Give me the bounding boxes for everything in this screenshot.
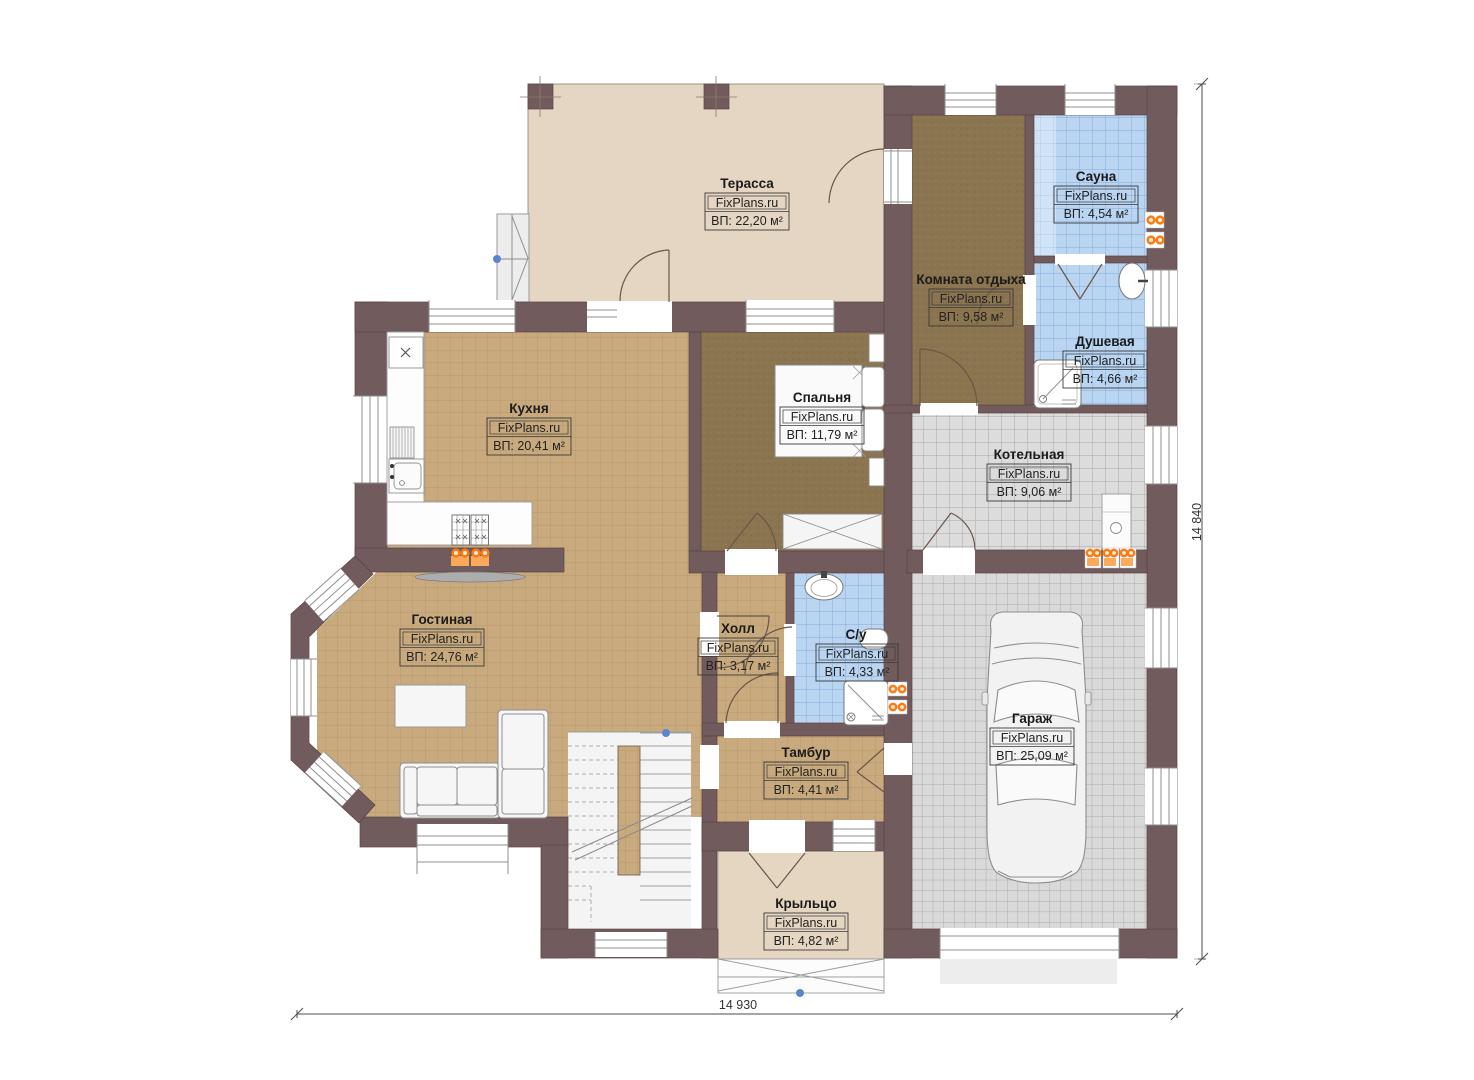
svg-text:FixPlans.ru: FixPlans.ru: [998, 467, 1061, 481]
svg-text:ВП: 11,79 м²: ВП: 11,79 м²: [787, 428, 858, 442]
svg-text:ВП: 4,82 м²: ВП: 4,82 м²: [774, 934, 839, 948]
svg-text:FixPlans.ru: FixPlans.ru: [791, 410, 854, 424]
svg-text:ВП: 3,17 м²: ВП: 3,17 м²: [706, 659, 771, 673]
svg-text:FixPlans.ru: FixPlans.ru: [1065, 189, 1128, 203]
svg-text:Терасса: Терасса: [720, 176, 774, 191]
svg-text:FixPlans.ru: FixPlans.ru: [716, 196, 779, 210]
svg-text:ВП: 4,66 м²: ВП: 4,66 м²: [1073, 372, 1138, 386]
svg-text:ВП: 9,06 м²: ВП: 9,06 м²: [997, 485, 1062, 499]
svg-text:FixPlans.ru: FixPlans.ru: [775, 765, 838, 779]
svg-text:FixPlans.ru: FixPlans.ru: [411, 632, 474, 646]
svg-text:С/у: С/у: [845, 627, 867, 642]
svg-text:ВП: 25,09 м²: ВП: 25,09 м²: [996, 749, 1068, 763]
svg-text:Спальня: Спальня: [793, 390, 851, 405]
svg-text:ВП: 9,58 м²: ВП: 9,58 м²: [939, 310, 1004, 324]
svg-text:Гостиная: Гостиная: [411, 612, 472, 627]
svg-text:ВП: 4,33 м²: ВП: 4,33 м²: [825, 665, 890, 679]
svg-text:FixPlans.ru: FixPlans.ru: [498, 421, 561, 435]
svg-text:Тамбур: Тамбур: [782, 745, 831, 760]
svg-text:Котельная: Котельная: [994, 447, 1065, 462]
svg-text:14 840: 14 840: [1190, 503, 1204, 541]
svg-text:Душевая: Душевая: [1075, 334, 1135, 349]
svg-text:Сауна: Сауна: [1076, 169, 1117, 184]
svg-text:Крыльцо: Крыльцо: [775, 896, 836, 911]
svg-text:Холл: Холл: [721, 621, 755, 636]
svg-text:ВП: 4,41 м²: ВП: 4,41 м²: [774, 783, 839, 797]
svg-text:FixPlans.ru: FixPlans.ru: [707, 641, 770, 655]
svg-text:Комната отдыха: Комната отдыха: [916, 272, 1026, 287]
svg-text:FixPlans.ru: FixPlans.ru: [775, 916, 838, 930]
svg-text:FixPlans.ru: FixPlans.ru: [1074, 354, 1137, 368]
svg-text:ВП: 22,20 м²: ВП: 22,20 м²: [711, 214, 783, 228]
svg-text:14 930: 14 930: [719, 998, 757, 1012]
svg-text:Кухня: Кухня: [509, 401, 548, 416]
svg-text:ВП: 4,54 м²: ВП: 4,54 м²: [1064, 207, 1129, 221]
svg-text:FixPlans.ru: FixPlans.ru: [826, 647, 889, 661]
svg-text:Гараж: Гараж: [1012, 711, 1053, 726]
svg-text:ВП: 20,41 м²: ВП: 20,41 м²: [493, 439, 565, 453]
svg-text:FixPlans.ru: FixPlans.ru: [1001, 731, 1064, 745]
svg-text:FixPlans.ru: FixPlans.ru: [940, 292, 1003, 306]
svg-text:ВП: 24,76 м²: ВП: 24,76 м²: [406, 650, 478, 664]
